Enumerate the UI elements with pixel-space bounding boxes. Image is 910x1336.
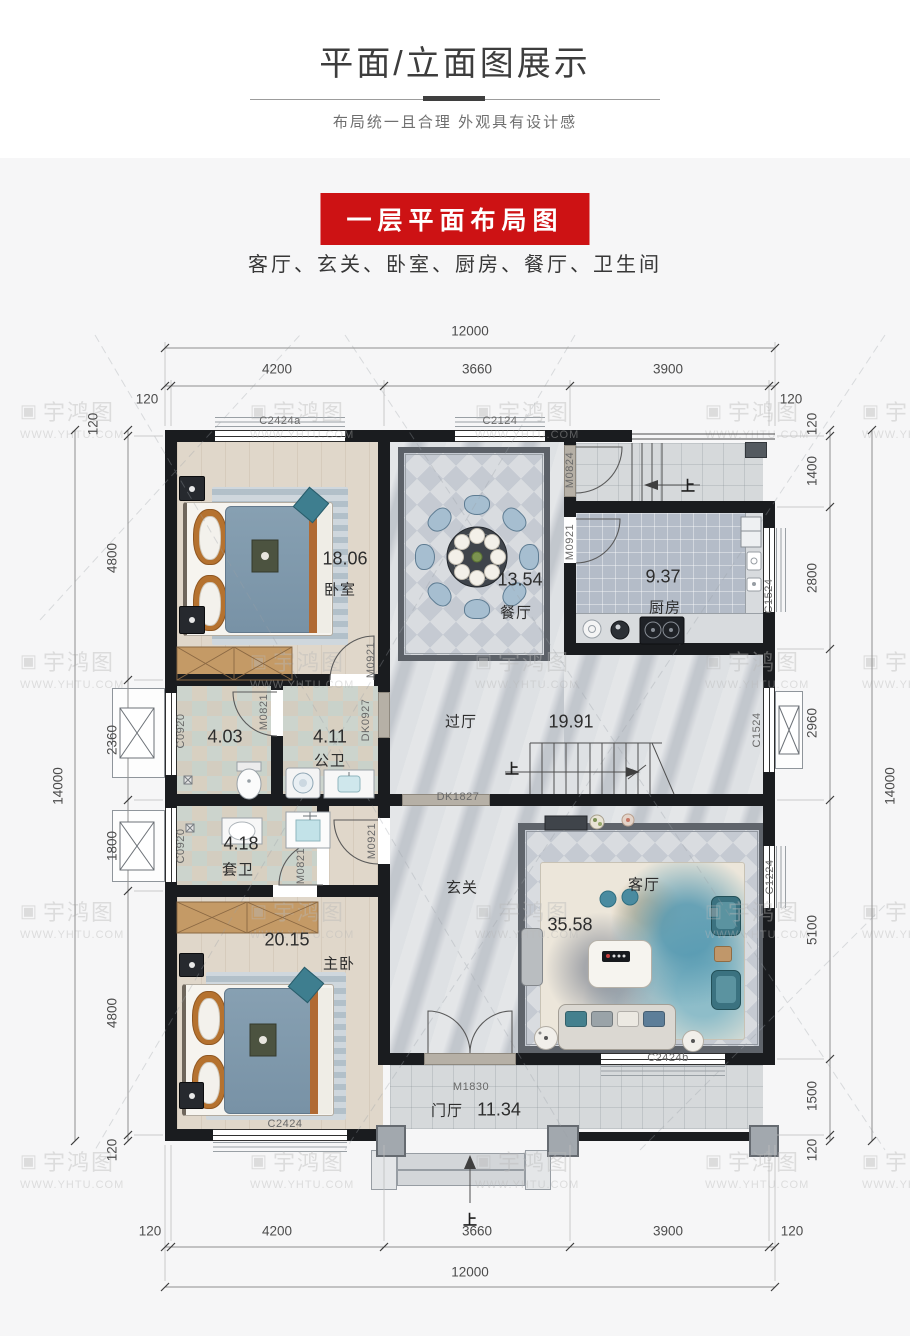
master-wardrobe [177, 902, 318, 933]
bath1-area: 4.03 [207, 727, 242, 748]
pillow [193, 509, 227, 565]
bath2-label: 公卫 [314, 750, 346, 771]
dim-bottom-1: 4200 [262, 1224, 292, 1239]
front-step [397, 1153, 525, 1170]
porch-parapet [579, 1132, 751, 1141]
master-bed [182, 984, 334, 1116]
dim-right-2: 2800 [805, 563, 820, 593]
sofa-cushion [617, 1011, 639, 1027]
pillow [192, 991, 226, 1045]
page-subtitle: 布局统一且合理 外观具有设计感 [0, 111, 910, 132]
dim-right-end-bottom: 120 [805, 1139, 820, 1162]
label-c2424a: C2424a [259, 415, 301, 427]
dining-label: 餐厅 [500, 602, 532, 623]
dim-left-2: 2360 [105, 725, 120, 755]
window-c2424 [213, 1129, 347, 1141]
porch-label: 门厅 [431, 1100, 463, 1121]
sofa-cushion [643, 1011, 665, 1027]
opening-dk0927 [378, 692, 390, 738]
label-c0920-ensuite: C0920 [175, 829, 187, 864]
dim-top-end-right: 120 [780, 392, 803, 407]
dim-top-1: 4200 [262, 362, 292, 377]
dim-left-end-bottom: 120 [105, 1139, 120, 1162]
bay-window-left1 [112, 688, 165, 778]
entry-label: 玄关 [446, 877, 478, 898]
dim-bottom-end-left: 120 [139, 1224, 162, 1239]
stool [534, 1026, 558, 1050]
nightstand [179, 953, 204, 977]
nightstand [179, 476, 205, 501]
bedroom1-area: 18.06 [322, 549, 367, 570]
divider-accent [423, 96, 485, 101]
stair-hall-floor [564, 655, 763, 794]
dim-left-end-top: 120 [86, 413, 101, 436]
ensuite-area: 4.18 [223, 834, 258, 855]
master-area: 20.15 [264, 930, 309, 951]
section-banner: 一层平面布局图 [320, 193, 589, 245]
wall-kitchen-north [564, 501, 775, 513]
hall-area: 19.91 [548, 712, 593, 733]
door-opening-m1830 [424, 1053, 516, 1065]
label-m0821-ensuite: M0821 [295, 848, 307, 884]
pillow-inner [198, 998, 220, 1040]
window-sill [776, 528, 788, 612]
label-c2424: C2424 [268, 1118, 303, 1130]
window-c2424a [215, 430, 345, 442]
dim-bottom-3: 3900 [653, 1224, 683, 1239]
label-c1224: C1224 [764, 860, 776, 895]
window-sill [601, 1066, 725, 1078]
nightstand [179, 1082, 204, 1109]
label-m0824: M0824 [564, 452, 576, 488]
dim-right-4: 5100 [805, 915, 820, 945]
porch-pier [749, 1125, 779, 1157]
front-step [397, 1170, 525, 1186]
label-c1524-stair: C1524 [751, 713, 763, 748]
armchair [711, 896, 741, 936]
porch-pier [547, 1125, 579, 1157]
label-c0920-bath: C0920 [175, 714, 187, 749]
wall-kitchen-south [564, 643, 775, 655]
stairs-up-main: 上 [505, 759, 519, 779]
dim-left-3: 1800 [105, 831, 120, 861]
wall-bedroom1-east [378, 442, 390, 686]
dim-top-3: 3900 [653, 362, 683, 377]
dim-right-1: 1400 [805, 456, 820, 486]
window-sill [776, 846, 788, 908]
door-opening-ensuite [317, 841, 329, 885]
label-m0921-bedroom1: M0921 [365, 642, 377, 678]
dining-chair [464, 495, 490, 515]
side-table [714, 946, 732, 962]
rear-column [745, 442, 767, 458]
dim-top-end-left: 120 [136, 392, 159, 407]
bay-window-right [775, 691, 803, 769]
stairs-up-rear: 上 [681, 476, 695, 496]
dim-left-1: 4800 [105, 543, 120, 573]
dim-right-3: 2960 [805, 708, 820, 738]
sheet-fold [318, 988, 332, 1114]
dim-right-5: 1500 [805, 1081, 820, 1111]
dining-chair [519, 544, 539, 570]
wall-left [165, 430, 177, 1141]
dining-chair [415, 544, 435, 570]
dim-overall-height-right: 14000 [883, 767, 898, 805]
blanket-strip [309, 506, 317, 633]
door-opening-ensuite2 [273, 885, 317, 897]
duvet [224, 988, 322, 1114]
label-c2124: C2124 [483, 415, 518, 427]
nightstand [179, 606, 205, 634]
sheet-fold [317, 506, 331, 633]
rear-landing-floor [576, 443, 763, 501]
dim-left-4: 4800 [105, 998, 120, 1028]
porch-area: 11.34 [477, 1100, 521, 1121]
blanket-strip [310, 988, 318, 1114]
duvet [225, 506, 321, 633]
kitchen-counter-bottom [576, 613, 763, 643]
door-opening-master [378, 818, 390, 864]
page-title: 平面/立面图展示 [0, 36, 910, 85]
armchair [711, 970, 741, 1010]
ensuite-label: 套卫 [222, 859, 254, 880]
label-dk0927: DK0927 [360, 699, 372, 742]
dim-bottom-end-right: 120 [781, 1224, 804, 1239]
door-opening-bath1 [271, 690, 283, 736]
label-dk1827: DK1827 [437, 791, 480, 803]
label-m0921-kitchen: M0921 [564, 524, 576, 560]
window-c2124 [455, 430, 545, 442]
master-label: 主卧 [323, 953, 355, 974]
label-m1830: M1830 [453, 1081, 489, 1093]
label-m0921-master: M0921 [366, 823, 378, 859]
kitchen-area: 9.37 [645, 567, 680, 588]
coffee-table [588, 940, 652, 988]
label-c1524-kitchen: C1524 [763, 579, 775, 614]
porch-pier [376, 1125, 406, 1157]
pillow-inner [199, 516, 221, 560]
dim-overall-width-bottom: 12000 [451, 1265, 489, 1280]
kitchen-label: 厨房 [649, 597, 681, 618]
sofa-cushion [565, 1011, 587, 1027]
page: 平面/立面图展示 布局统一且合理 外观具有设计感 一层平面布局图 客厅、玄关、卧… [0, 0, 910, 1336]
stool [682, 1030, 704, 1052]
window-sill [213, 1142, 347, 1154]
dim-overall-height-left: 14000 [51, 767, 66, 805]
bedroom1-label: 卧室 [324, 579, 356, 600]
dim-right-end-top: 120 [805, 413, 820, 436]
rooms-summary: 客厅、玄关、卧室、厨房、餐厅、卫生间 [0, 248, 910, 277]
dim-overall-width-top: 12000 [451, 324, 489, 339]
hall-label: 过厅 [445, 711, 477, 732]
tv-bench [521, 928, 543, 986]
sofa-cushion [591, 1011, 613, 1027]
label-m0821-bath: M0821 [258, 694, 270, 730]
living-area: 35.58 [547, 915, 592, 936]
window-c1524-stair [763, 688, 775, 772]
dining-area: 13.54 [497, 570, 542, 591]
dining-chair [464, 599, 490, 619]
living-label: 客厅 [628, 874, 660, 895]
sofa [558, 1004, 676, 1050]
bay-window-left2 [112, 810, 165, 882]
dim-top-2: 3660 [462, 362, 492, 377]
label-c2424b: C2424b [647, 1052, 689, 1064]
bath2-area: 4.11 [313, 727, 347, 748]
dim-bottom-2: 3660 [462, 1224, 492, 1239]
